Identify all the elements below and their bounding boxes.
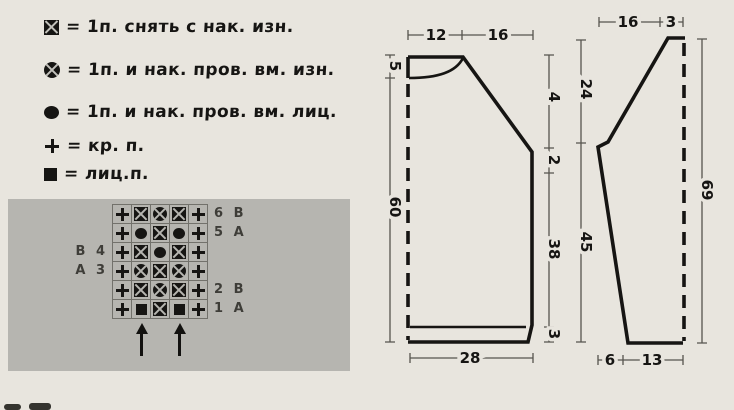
sleeve-bottom-dim-2: 13 [642,351,663,369]
sleeve-outline [598,38,685,343]
body-left-dim-1: 5 [386,61,404,71]
page-cutoff-fragment [29,403,51,410]
body-right-dim-3: 38 [545,239,563,260]
body-neck-curve [409,58,463,78]
body-right-dim-1: 4 [545,92,563,102]
body-right-dim-4: 3 [545,329,563,339]
schematics-drawing: 12 16 5 60 4 2 38 3 28 16 3 24 45 69 6 1… [0,0,734,410]
sleeve-left-dim-2: 45 [577,232,595,253]
sleeve-top-dim-1: 16 [618,13,639,31]
sleeve-bottom-dim-1: 6 [605,351,615,369]
body-top-dim-1: 12 [426,26,447,44]
body-top-dim-2: 16 [488,26,509,44]
body-bottom-dim-1: 28 [460,349,481,367]
sleeve-top-dim-2: 3 [666,13,676,31]
sleeve-right-dim-1: 69 [698,180,716,201]
pattern-page: = 1п. снять с нак. изн. = 1п. и нак. про… [0,0,734,410]
page-cutoff-fragment [4,404,21,410]
body-outline [408,57,532,342]
body-right-dim-2: 2 [545,155,563,165]
sleeve-left-dim-1: 24 [577,79,595,100]
body-left-dim-2: 60 [386,197,404,218]
